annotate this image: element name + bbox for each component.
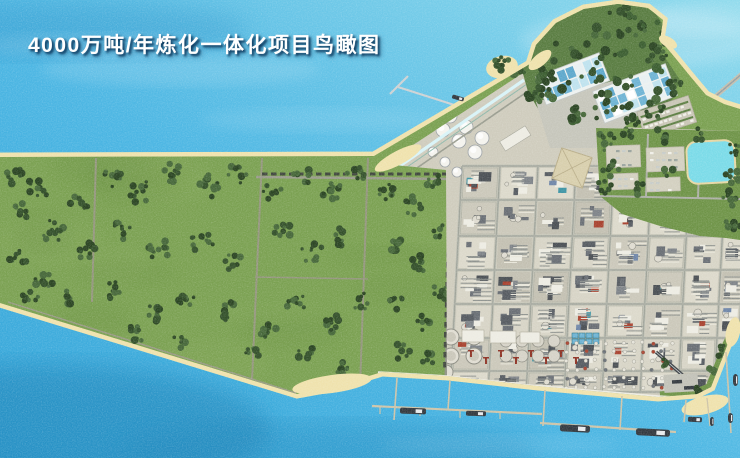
aerial-rendering: 4000万吨/年炼化一体化项目鸟瞰图: [0, 0, 740, 458]
render-grain: [0, 0, 740, 458]
image-caption: 4000万吨/年炼化一体化项目鸟瞰图: [28, 29, 381, 59]
rendering-canvas: [0, 0, 740, 458]
